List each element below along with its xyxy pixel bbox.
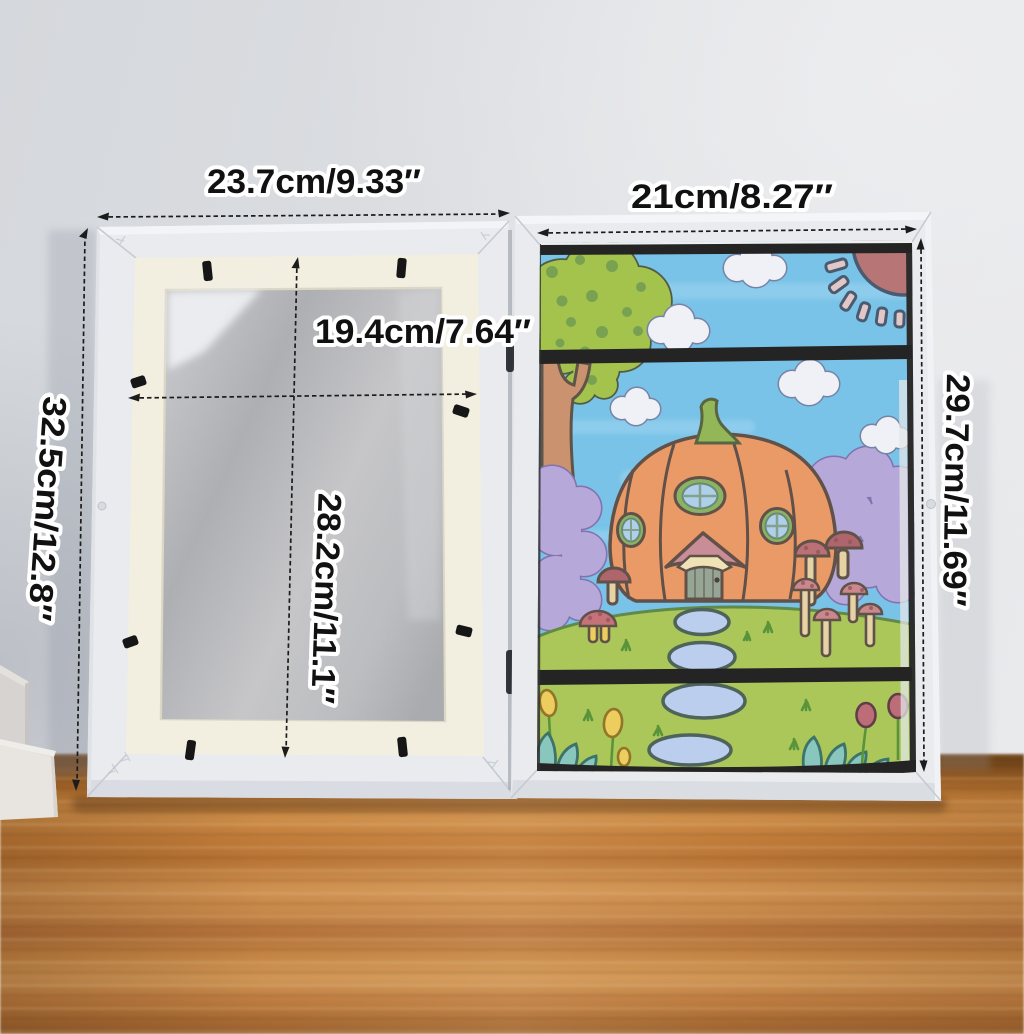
svg-text:28.2cm/11.1″: 28.2cm/11.1″	[304, 492, 348, 704]
svg-text:21cm/8.27″: 21cm/8.27″	[631, 178, 833, 216]
svg-text:29.7cm/11.69″: 29.7cm/11.69″	[936, 373, 977, 607]
svg-text:23.7cm/9.33″: 23.7cm/9.33″	[207, 163, 421, 201]
svg-text:19.4cm/7.64″: 19.4cm/7.64″	[315, 313, 531, 351]
